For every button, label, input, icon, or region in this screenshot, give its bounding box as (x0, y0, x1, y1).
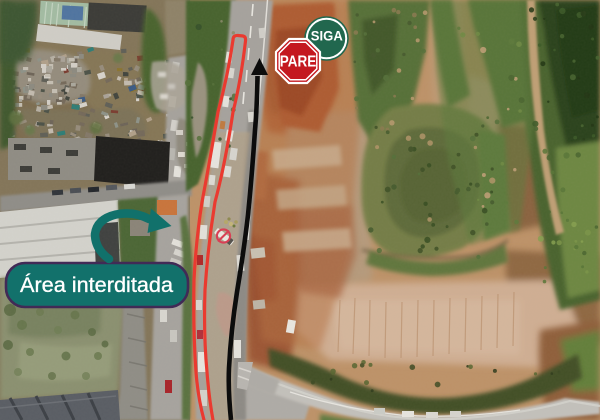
svg-text:PARE: PARE (280, 53, 317, 70)
svg-text:SIGA: SIGA (311, 27, 343, 43)
svg-text:Área interditada: Área interditada (20, 272, 173, 297)
